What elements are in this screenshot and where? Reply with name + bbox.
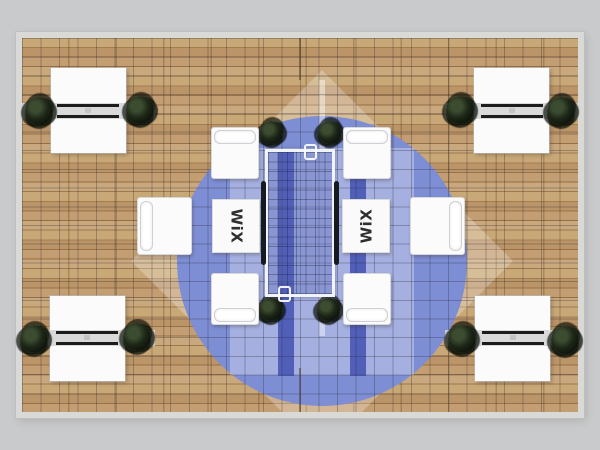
plant <box>551 326 579 354</box>
handle-line <box>482 331 544 334</box>
plank-seam-top <box>299 38 301 80</box>
cabinet-lock <box>509 108 515 113</box>
table-clamp-bottom <box>278 286 291 302</box>
plant <box>123 323 151 351</box>
plant <box>317 298 340 321</box>
handle-line <box>57 115 119 118</box>
table-side-rail-left <box>261 181 266 265</box>
chair-backrest <box>214 130 256 144</box>
plant <box>547 97 575 125</box>
armchair-left <box>137 197 192 255</box>
chair-backrest <box>449 201 462 251</box>
armchair-right <box>410 197 465 255</box>
chair-backrest <box>214 308 256 322</box>
chair-backrest <box>346 130 388 144</box>
handle-line <box>481 104 543 107</box>
plant <box>25 97 53 125</box>
glass-table <box>265 149 335 297</box>
branded-seat-left: WiX <box>212 199 260 253</box>
plant <box>126 96 154 124</box>
cabinet-lock <box>84 335 90 340</box>
branded-seat-right: WiX <box>342 199 390 253</box>
armchair-bottom-left <box>211 273 259 325</box>
chair-backrest <box>346 308 388 322</box>
plank-seam-bottom <box>299 368 301 412</box>
table-clamp-top <box>304 144 317 160</box>
cabinet-lock <box>85 108 91 113</box>
handle-line <box>56 331 118 334</box>
chair-backrest <box>140 201 153 251</box>
booth-render: WiX WiX <box>0 0 600 450</box>
wix-logo: WiX <box>227 209 245 244</box>
plant <box>20 325 48 353</box>
handle-line <box>482 342 544 345</box>
table-side-rail-right <box>334 181 339 265</box>
armchair-top-right <box>343 127 391 179</box>
armchair-bottom-right <box>343 273 391 325</box>
handle-line <box>481 115 543 118</box>
handle-line <box>56 342 118 345</box>
plant <box>446 96 474 124</box>
plant <box>260 121 283 144</box>
handle-line <box>57 104 119 107</box>
wix-logo: WiX <box>357 209 375 244</box>
plant <box>448 325 476 353</box>
armchair-top-left <box>211 127 259 179</box>
cabinet-lock <box>510 335 516 340</box>
plant <box>318 121 341 144</box>
